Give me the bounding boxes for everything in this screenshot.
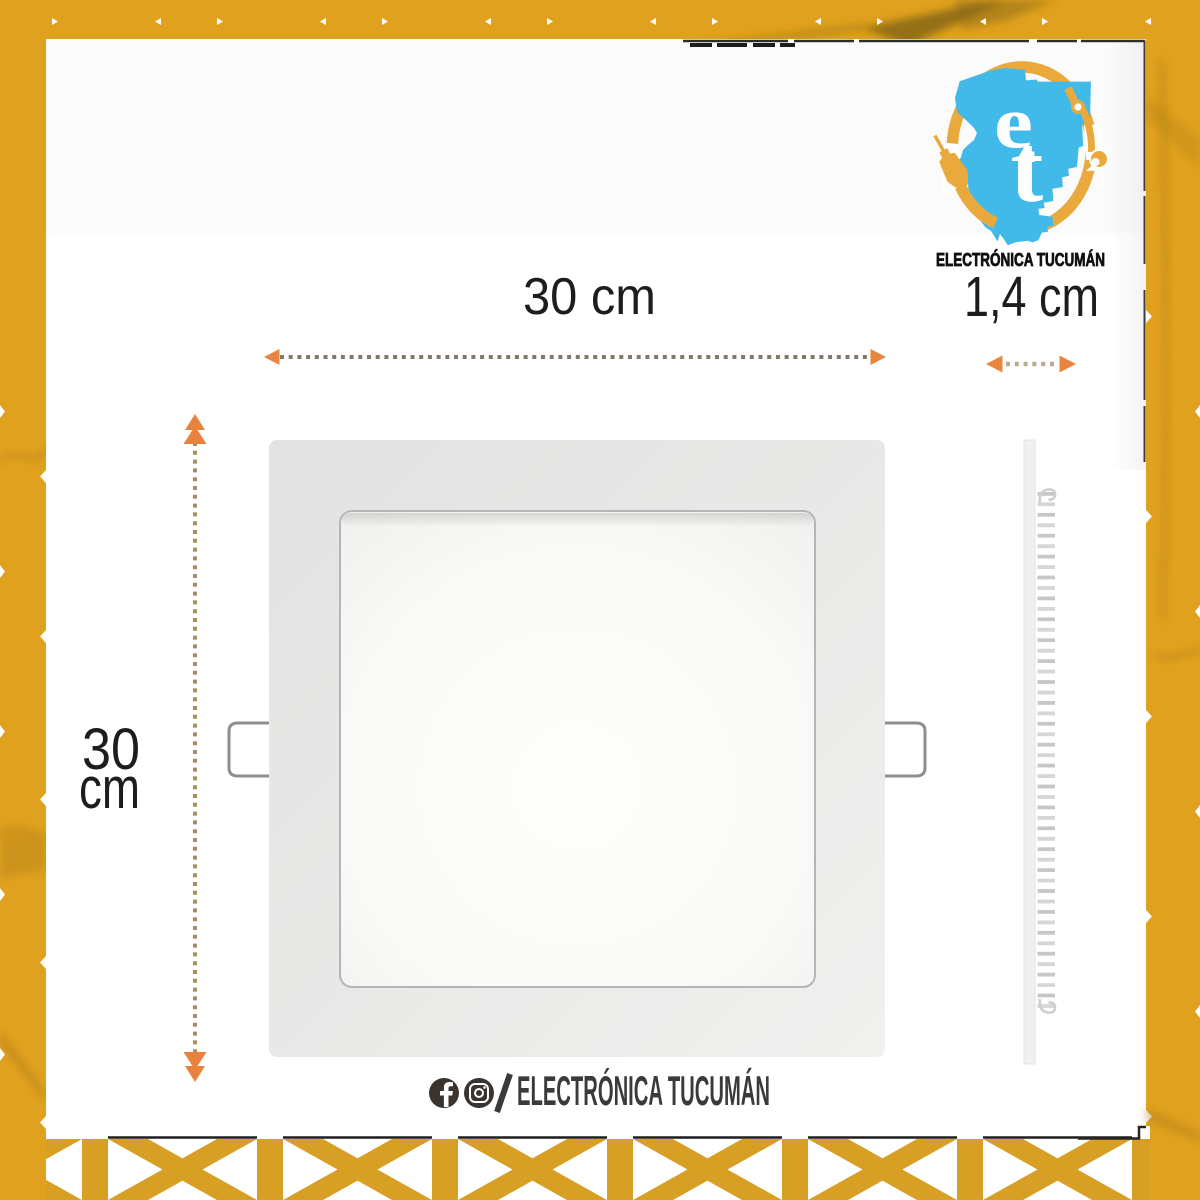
- svg-text:ELECTRÓNICA TUCUMÁN: ELECTRÓNICA TUCUMÁN: [517, 1066, 770, 1114]
- svg-text:30 cm: 30 cm: [523, 268, 656, 326]
- svg-text:ELECTRÓNICA TUCUMÁN: ELECTRÓNICA TUCUMÁN: [936, 249, 1105, 270]
- svg-text:cm: cm: [79, 756, 140, 821]
- svg-text:t: t: [1011, 115, 1044, 223]
- svg-text:1,4 cm: 1,4 cm: [964, 265, 1099, 329]
